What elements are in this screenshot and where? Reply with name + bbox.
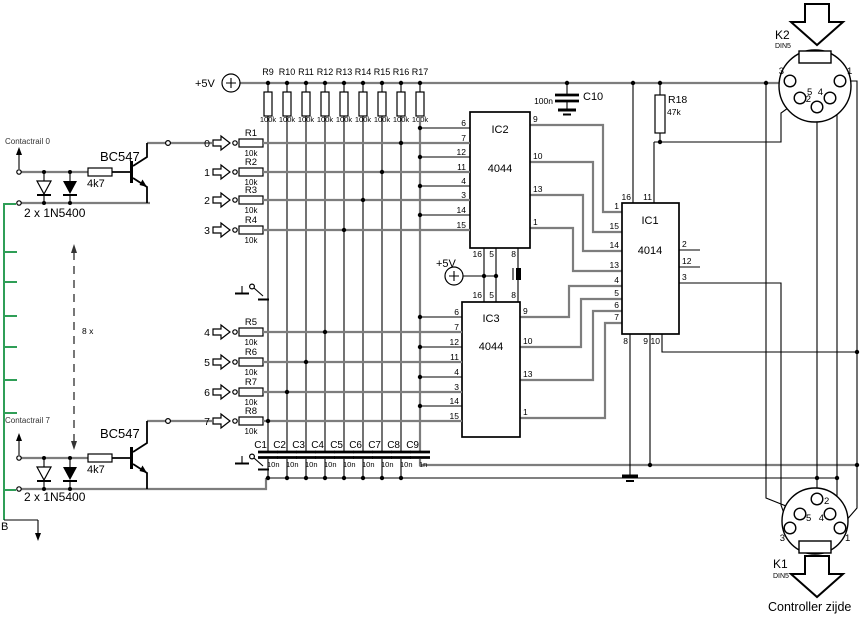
ic1-pin-label: 10 [651,336,661,346]
ic1-part: 4014 [638,245,662,257]
junction-dot [482,274,486,278]
ic1-pin-label: 12 [682,256,692,266]
diode-icon [63,467,77,480]
junction-dot [399,476,403,480]
ic1-pin-label: 3 [682,272,687,282]
ic3-pin-label: 6 [454,307,459,317]
row-resistor-value: 10k [245,338,259,347]
pullup-resistor-body [321,92,329,116]
schematic-page: R9100kC110nR10100kC210nR11100kC310nR1210… [0,0,861,621]
vcc-label: +5V [436,258,457,270]
k2-pin [784,75,796,87]
pullup-resistor-body [340,92,348,116]
pullup-resistor-name: R17 [412,67,429,77]
junction-dot [418,184,422,188]
junction-dot [399,141,403,145]
ic2-pin-label: 11 [457,162,466,172]
base-resistor-value: 4k7 [87,464,105,476]
ic1-pin-label: 14 [610,240,620,250]
row-resistor-body [239,358,263,366]
ic1-pin-label: 9 [643,336,648,346]
row-resistor-name: R8 [245,406,257,417]
junction-dot [494,274,498,278]
r18-value: 47k [667,107,681,117]
ic2-pin-label: 16 [473,249,483,259]
row-resistor-value: 10k [245,368,259,377]
junction-dot [815,476,819,480]
junction-dot [648,463,652,467]
ic2-pin-label: 8 [511,249,516,259]
capacitor-name: C1 [254,440,267,451]
row-resistor-name: R7 [245,377,257,388]
row-resistor-value: 10k [245,236,259,245]
contactrail-label: Contactrail 0 [5,137,50,146]
contact-rail-green [4,204,17,520]
junction-dot [855,350,859,354]
junction-dot [764,81,768,85]
ic2-pin-label: 4 [461,176,466,186]
junction-dot [68,456,72,460]
pullup-resistor-body [397,92,405,116]
input-arrow-icon [213,325,230,339]
ic2-pin-label: 6 [461,118,466,128]
ic3-pin-label: 10 [523,336,533,346]
ic2-pin-label: 9 [533,114,538,124]
junction-dot [68,201,72,205]
input-arrow-icon [213,355,230,369]
ic1-pin-label: 11 [643,192,652,202]
row-resistor-body [239,417,263,425]
terminal-node [17,456,21,460]
arrow-up-icon [16,147,22,155]
c10-capacitor-icon [555,95,579,101]
pullup-resistor-body [416,92,424,116]
capacitor-value: 10n [305,460,318,469]
k2-pin [794,92,806,104]
terminal-node [233,141,237,145]
ic1-pin-label: 2 [682,239,687,249]
transistor-label: BC547 [100,149,140,164]
components [16,4,859,597]
pullup-resistor-body [264,92,272,116]
input-arrow-icon [213,193,230,207]
rail-return-label: B [1,521,8,533]
terminal-node [166,141,171,146]
r18-resistor-body [655,95,665,133]
capacitor-value: 10n [286,460,299,469]
junction-dot [68,170,72,174]
k2-pin [834,75,846,87]
junction-dot [285,390,289,394]
input-index-label: 3 [204,225,210,237]
base-resistor-value: 4k7 [87,178,105,190]
junction-dot [42,456,46,460]
input-index-label: 1 [204,167,210,179]
ic3-name: IC3 [482,313,499,325]
pullup-resistor-name: R10 [279,67,296,77]
terminal-node [233,198,237,202]
row-resistor-value: 10k [245,427,259,436]
ic3-pin-label: 8 [511,290,516,300]
ic2-pin-label: 7 [461,133,466,143]
k2-pin-number: 1 [847,66,852,77]
junction-dot [418,345,422,349]
k2-type: DIN5 [775,43,791,50]
capacitor-name: C2 [273,440,286,451]
k2-pin [824,92,836,104]
k1-pin [824,508,836,520]
junction-dot [855,463,859,467]
cable-direction-arrow-top-icon [791,4,843,45]
input-arrow-icon [213,223,230,237]
row-resistor-body [239,226,263,234]
cable-direction-arrow-bottom-icon [791,556,843,597]
junction-dot [323,476,327,480]
k2-pin-number: 4 [818,87,823,98]
terminal-node [233,419,237,423]
ic3-pin-label: 12 [450,337,460,347]
contact-switch-symbol [235,284,269,299]
ic1-name: IC1 [641,215,658,227]
arrow-up-icon [16,433,22,441]
k2-name: K2 [775,28,790,42]
base-resistor-body-top [88,168,112,176]
row-resistor-body [239,168,263,176]
capacitor-value: 10n [362,460,375,469]
arrow-down-icon [35,533,41,541]
c10-value: 100n [534,96,553,106]
ic3-pin-label: 16 [473,290,483,300]
ic3-pin-label: 1 [523,407,528,417]
transistor-label: BC547 [100,426,140,441]
k1-pin-number: 4 [819,513,824,524]
junction-dot [285,476,289,480]
row-resistor-name: R3 [245,185,257,196]
repeat-note: 8 x [82,326,94,336]
terminal-node [233,390,237,394]
terminal-node [233,330,237,334]
junction-dot [266,476,270,480]
transistor-bc547-bottom [130,447,147,473]
junction-dot [418,126,422,130]
ic1-pin-label: 16 [622,192,632,202]
input-index-label: 0 [204,138,210,150]
pullup-resistor-name: R9 [262,67,274,77]
k1-pin-number: 2 [824,496,829,507]
diode-icon [37,467,51,480]
diode-pair-label: 2 x 1N5400 [24,206,86,220]
capacitor-name: C4 [311,440,324,451]
ic1-pin-label: 6 [614,300,619,310]
din5-notch [799,51,831,63]
input-index-label: 2 [204,195,210,207]
terminal-node [166,419,171,424]
junction-dot [418,155,422,159]
decouple-cap-icon [516,268,521,280]
pullup-resistor-name: R12 [317,67,334,77]
row-resistor-body [239,388,263,396]
ic3-pin-label: 14 [450,396,460,406]
c10-name: C10 [583,91,603,103]
ic3-pin-label: 11 [450,352,459,362]
junction-dot [304,476,308,480]
k1-type: DIN5 [773,573,789,580]
ic3-pin-label: 5 [489,290,494,300]
ic2-pin-label: 10 [533,151,543,161]
input-arrow-icon [213,136,230,150]
capacitor-value: 10n [400,460,413,469]
junction-dot [418,404,422,408]
ic1-pin-label: 7 [614,312,619,322]
row-resistor-value: 10k [245,206,259,215]
k1-name: K1 [773,557,788,571]
ic3-part: 4044 [479,341,503,353]
pullup-resistor-name: R15 [374,67,391,77]
ic1-pin-label: 5 [614,288,619,298]
row-resistor-body [239,139,263,147]
ic3-pin-label: 13 [523,369,533,379]
ic2-name: IC2 [491,124,508,136]
ic1-pin-label: 1 [614,201,619,211]
junction-dot [418,213,422,217]
capacitor-name: C7 [368,440,381,451]
k1-pin [811,493,823,505]
row-resistor-name: R1 [245,128,257,139]
capacitor-name: C5 [330,440,343,451]
terminal-node [17,170,21,174]
diode-pair-bottom [37,467,77,481]
ic3-pin-label: 3 [454,382,459,392]
contactrail-label: Contactrail 7 [5,416,50,425]
ic1-pin-label: 13 [610,260,620,270]
row-resistor-name: R2 [245,157,257,168]
junction-dot [418,375,422,379]
ic3-pin-label: 15 [450,411,460,421]
capacitor-name: C8 [387,440,400,451]
input-index-label: 5 [204,357,210,369]
ic2-pin-label: 3 [461,190,466,200]
junction-dot [361,198,365,202]
junction-dot [42,170,46,174]
pullup-resistor-name: R16 [393,67,410,77]
base-resistor-body-bottom [88,454,112,462]
k1-pin-number: 5 [806,513,811,524]
k1-pin [794,508,806,520]
junction-dot [266,419,270,423]
diode-icon [63,181,77,194]
ic2-pin-label: 14 [457,205,467,215]
row-resistor-name: R5 [245,317,257,328]
arrow-down-icon [71,441,77,450]
input-index-label: 6 [204,387,210,399]
junction-dot [323,330,327,334]
input-arrow-icon [213,165,230,179]
terminal-node [233,228,237,232]
vcc-label: +5V [195,78,216,90]
junction-dot [565,81,569,85]
input-index-label: 4 [204,327,210,339]
junction-dot [42,201,46,205]
terminal-node [233,360,237,364]
arrow-up-icon [71,244,77,253]
ic2-pin-label: 1 [533,217,538,227]
junction-dot [835,476,839,480]
capacitor-value: 10n [381,460,394,469]
ic3-pin-label: 7 [454,322,459,332]
k1-pin-number: 1 [845,533,850,544]
capacitor-value: 10n [324,460,337,469]
row-resistor-body [239,328,263,336]
row-resistor-name: R4 [245,215,257,226]
capacitor-name: C9 [406,440,419,451]
diode-icon [37,181,51,194]
din5-notch [799,541,831,553]
capacitor-name: C3 [292,440,305,451]
row-resistor-body [239,196,263,204]
junction-dot [631,81,635,85]
junction-dot [380,476,384,480]
junction-dot [380,170,384,174]
row-resistor-name: R6 [245,347,257,358]
pullup-resistor-body [378,92,386,116]
ic2-pin-label: 5 [489,249,494,259]
input-index-label: 7 [204,416,210,428]
capacitor-value: 10n [343,460,356,469]
ic2-pin-label: 12 [457,147,467,157]
k1-pin-number: 3 [780,533,785,544]
ic2-pin-label: 13 [533,184,543,194]
input-arrow-icon [213,385,230,399]
k2-pin-number: 3 [779,66,784,77]
ic2-pin-label: 15 [457,220,467,230]
terminal-node [17,487,21,491]
ic3-pin-label: 4 [454,367,459,377]
terminal-node [233,170,237,174]
pullup-resistor-body [302,92,310,116]
ic1-pin-label: 4 [614,275,619,285]
capacitor-value: 10n [267,460,280,469]
diode-pair-label: 2 x 1N5400 [24,490,86,504]
k2-pin [811,101,823,113]
ic2-part: 4044 [488,163,512,175]
junction-dot [342,476,346,480]
pullup-resistor-name: R13 [336,67,353,77]
junction-dot [361,476,365,480]
terminal-node [17,201,21,205]
ic3-pin-label: 9 [523,306,528,316]
pullup-resistor-body [359,92,367,116]
junction-dot [418,315,422,319]
capacitor-value: 1n [419,460,427,469]
circuit-schematic: R9100kC110nR10100kC210nR11100kC310nR1210… [0,0,861,621]
junction-dot [658,81,662,85]
pullup-resistor-body [283,92,291,116]
k1-pin [784,522,796,534]
input-arrow-icon [213,414,230,428]
pullup-resistor-name: R11 [298,67,314,77]
junction-dot [304,360,308,364]
junction-dot [342,228,346,232]
junction-dot [658,140,662,144]
r18-name: R18 [668,94,687,106]
transistor-bc547-top [130,161,147,187]
ic1-pin-label: 15 [610,221,620,231]
pullup-resistor-name: R14 [355,67,372,77]
controller-side-label: Controller zijde [768,600,851,614]
diode-pair-top [37,181,77,195]
k2-pin-number: 2 [806,94,811,105]
ic1-pin-label: 8 [623,336,628,346]
capacitor-name: C6 [349,440,362,451]
